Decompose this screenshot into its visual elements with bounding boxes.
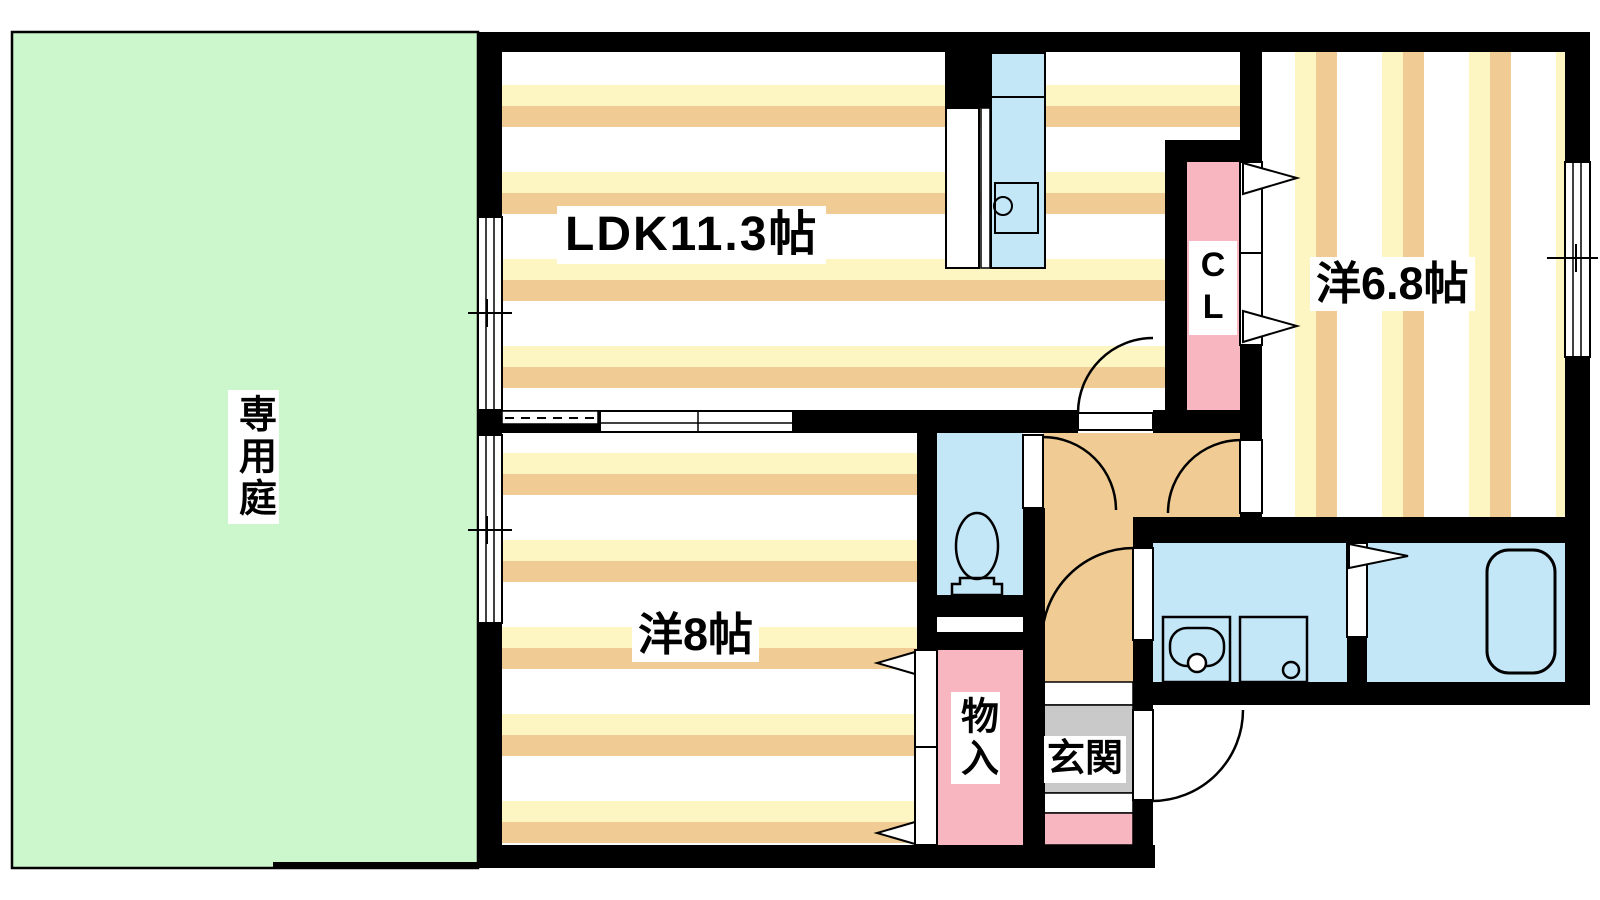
wall-genkan-right-lower: [1133, 800, 1153, 845]
window-bed68-right: [1565, 162, 1590, 357]
closet-label: CL: [1189, 241, 1237, 335]
kitchen-counter: [946, 108, 979, 268]
garden-label: 専用庭: [228, 390, 279, 524]
genkan-step-lower: [1043, 793, 1133, 813]
hall-floor-lower: [1043, 517, 1133, 682]
entrance-label: 玄関: [1044, 736, 1126, 783]
storage-door-panel-2: [915, 747, 937, 845]
window-ldk-bed8: [600, 411, 793, 432]
opening-dashed-box: [502, 411, 598, 424]
wall-bath-bottom: [1133, 682, 1590, 705]
porch-floor: [1043, 813, 1133, 845]
door-panel-bed68: [1240, 440, 1262, 513]
wall-garden-mid: [478, 410, 502, 435]
door-panel-ldk-hall: [1078, 413, 1153, 430]
door-arc-entrance: [1152, 710, 1243, 801]
wall-toilet-left: [917, 433, 937, 597]
bathroom-floor: [1367, 543, 1565, 682]
wall-washroom-bath-sep: [1347, 637, 1367, 682]
wall-garden-bottom-edge: [273, 862, 479, 868]
storage-door-panel-1: [915, 650, 937, 747]
wall-right-upper: [1565, 32, 1590, 162]
storage-label: 物入: [951, 692, 1000, 784]
wall-kitchen-stub: [945, 52, 991, 108]
kitchen-counter-edge: [981, 108, 990, 268]
door-panel-entrance: [1133, 710, 1153, 800]
wall-bed68-left-mid: [1240, 345, 1262, 440]
wall-ldk-bottom-mid: [793, 410, 1078, 433]
toilet-wall-strip: [937, 617, 1023, 632]
wall-closet-top: [1165, 140, 1262, 162]
door-panel-toilet: [1023, 435, 1043, 508]
wall-garden-lower: [478, 623, 502, 868]
genkan-step-upper: [1043, 682, 1133, 705]
wall-bottom-main: [478, 845, 1155, 868]
bedroom68-label: 洋6.8帖: [1310, 257, 1475, 311]
wall-wet-top: [1133, 517, 1590, 543]
floor-plan: 専用庭 LDK11.3帖 洋6.8帖 洋8帖 CL 物入 玄関: [0, 0, 1600, 900]
wall-closet-left: [1165, 140, 1187, 433]
door-panel-washroom: [1133, 548, 1153, 640]
washbasin-faucet-icon: [1188, 654, 1206, 672]
wall-garden-upper: [478, 32, 502, 217]
ldk-label: LDK11.3帖: [557, 206, 826, 264]
kitchen-unit-top: [991, 53, 1045, 97]
wall-top: [478, 32, 1590, 52]
washroom-floor: [1153, 543, 1347, 682]
bedroom8-label: 洋8帖: [632, 608, 759, 662]
wall-hall-left: [1023, 508, 1045, 845]
